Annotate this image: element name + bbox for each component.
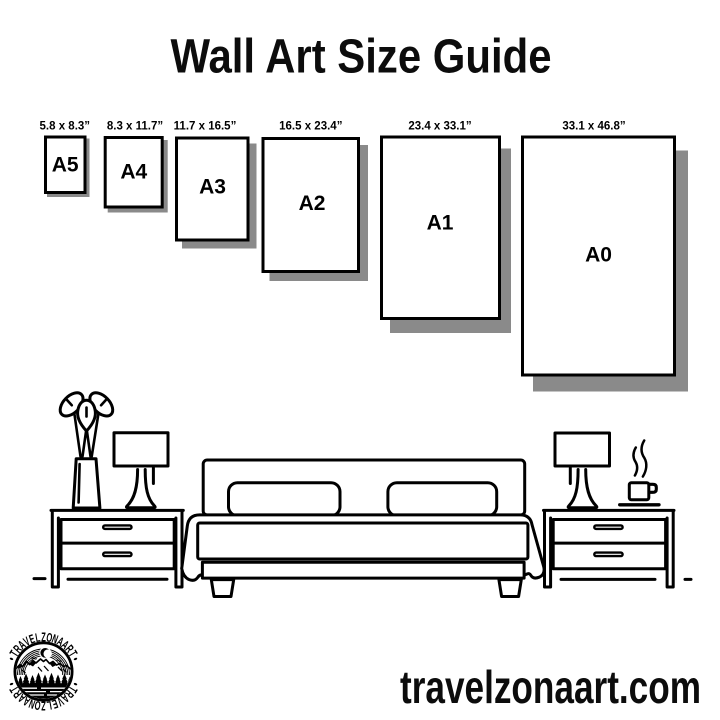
svg-text:A5: A5	[52, 153, 79, 176]
svg-text:A2: A2	[299, 192, 326, 215]
svg-text:16.5 x 23.4”: 16.5 x 23.4”	[279, 121, 342, 133]
svg-text:33.1 x 46.8”: 33.1 x 46.8”	[562, 121, 625, 133]
svg-text:A1: A1	[427, 212, 454, 235]
svg-text:Wall Art Size Guide: Wall Art Size Guide	[171, 31, 552, 84]
svg-text:23.4 x 33.1”: 23.4 x 33.1”	[408, 121, 471, 133]
svg-text:A3: A3	[199, 175, 226, 198]
svg-text:A4: A4	[120, 160, 147, 183]
svg-text:travelzonaart.com: travelzonaart.com	[400, 661, 701, 713]
svg-text:8.3 x 11.7”: 8.3 x 11.7”	[107, 121, 163, 133]
svg-text:11.7 x 16.5”: 11.7 x 16.5”	[174, 121, 237, 133]
svg-text:5.8 x 8.3”: 5.8 x 8.3”	[40, 121, 91, 133]
svg-text:A0: A0	[585, 244, 612, 267]
